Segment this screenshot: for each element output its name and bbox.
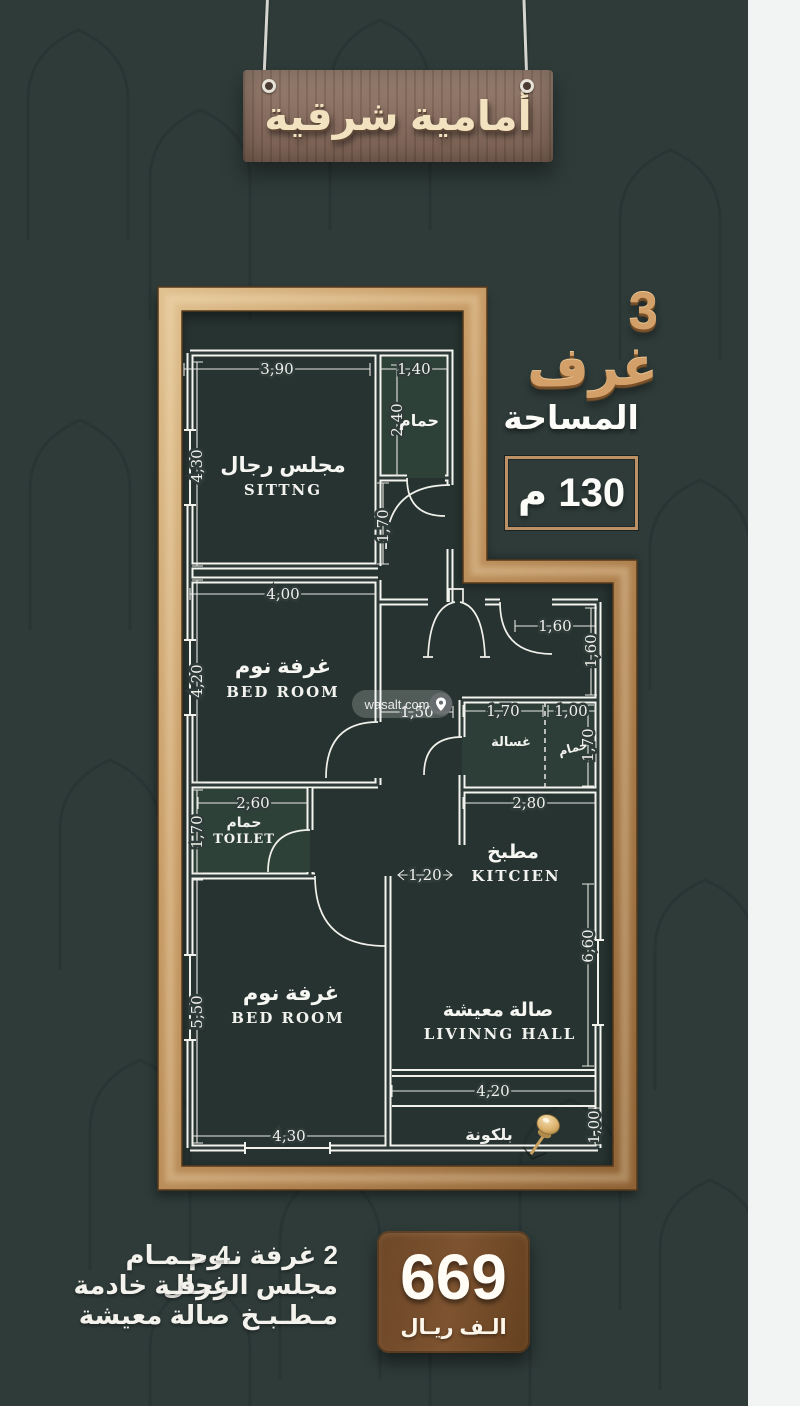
dim-toilet-width: 2,60	[236, 794, 269, 812]
room-label-kitchen-ar: مطبخ	[487, 842, 539, 863]
room-label-toilet-en: TOILET	[213, 832, 275, 847]
room-label-sitting-ar: مجلس رجال	[220, 454, 346, 477]
dim-living-height: 6,60	[579, 929, 597, 962]
room-label-sitting-en: SITTNG	[244, 481, 322, 499]
room-label-bed1-en: BED ROOM	[226, 683, 340, 701]
dim-bed1-height: 4,20	[188, 664, 206, 697]
room-label-living-ar: صالة معيشة	[443, 1000, 554, 1021]
poster-background: أمامية شرقية 3 غرف المساحة 130 م	[0, 0, 800, 1406]
features-column-2: 4 حـمـام غرفـة خادمة صالة معيشة	[73, 1240, 230, 1330]
dim-bed2-height: 5,50	[188, 995, 206, 1028]
room-label-bed1-ar: غرفة نوم	[235, 655, 331, 678]
dim-toilet-height: 1,70	[188, 815, 206, 848]
room-label-bath-top: حمام	[399, 413, 439, 430]
dim-bath-width: 1,40	[397, 360, 430, 378]
dim-hall-height: 1,70	[374, 509, 392, 542]
watermark-text: wasalt.com	[363, 697, 429, 712]
feature-item: صالة معيشة	[73, 1300, 230, 1330]
room-label-toilet-ar: حمام	[227, 814, 262, 830]
room-label-balcony: بلكونة	[465, 1127, 513, 1144]
dim-vestibule-height: 1,60	[582, 634, 600, 667]
room-label-laundry: غسالة	[491, 734, 531, 749]
price-unit: الـف ريـال	[400, 1315, 506, 1340]
dim-passage-width: 1,20	[408, 866, 441, 884]
dim-living-width: 4,20	[476, 1082, 509, 1100]
room-label-living-en: LIVINNG HALL	[424, 1025, 577, 1043]
price-value: 669	[400, 1245, 507, 1309]
watermark: wasalt.com	[352, 690, 453, 718]
dim-bathsmall-width: 1,00	[554, 702, 587, 720]
dim-bed2-width: 4,30	[272, 1127, 305, 1145]
dim-laundry-width: 1,70	[486, 702, 519, 720]
dim-vestibule-width: 1,60	[538, 617, 571, 635]
dim-kitchen-width: 2,80	[512, 794, 545, 812]
dim-sitting-width: 3,90	[260, 360, 293, 378]
room-label-bed2-ar: غرفة نوم	[243, 982, 339, 1005]
room-label-bed2-en: BED ROOM	[231, 1009, 345, 1027]
feature-item: غرفـة خادمة	[73, 1270, 230, 1300]
watermark-pin-badge	[430, 693, 453, 716]
dim-bed1-width: 4,00	[266, 585, 299, 603]
price-sign: 669 الـف ريـال	[377, 1231, 530, 1353]
feature-item: 4 حـمـام	[73, 1240, 230, 1270]
dim-sitting-height: 4,30	[188, 449, 206, 482]
room-label-kitchen-en: KITCIEN	[471, 867, 560, 885]
dim-balcony-height: 1,00	[585, 1110, 603, 1143]
